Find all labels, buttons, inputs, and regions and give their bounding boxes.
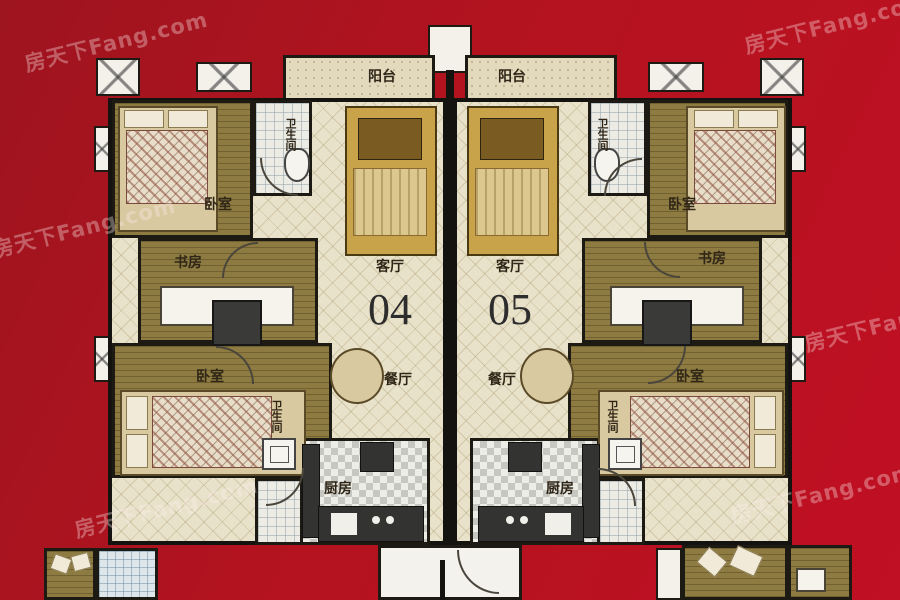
pillow — [168, 110, 208, 128]
unit05-coffee-table — [475, 168, 549, 236]
unit04-tv-cabinet — [358, 118, 422, 160]
pillow — [694, 110, 734, 128]
pillow — [738, 110, 778, 128]
unit05-bedroom-bottom-label: 卧室 — [660, 368, 720, 386]
watermark-mid-right: 房天下Fang.com — [801, 284, 900, 359]
watermark-top-right: 房天下Fang.com — [741, 0, 900, 60]
pillow — [754, 396, 776, 430]
burner — [506, 516, 514, 524]
unit04-sink — [330, 512, 358, 536]
unit04-living-label: 客厅 — [364, 258, 416, 276]
unit05-number: 05 — [476, 286, 544, 334]
unit04-number: 04 — [356, 286, 424, 334]
pillow — [124, 110, 164, 128]
bay-window-right-2 — [790, 336, 806, 382]
neighbor-table — [796, 568, 826, 592]
unit05-bathroom-top-label: 卫生间 — [594, 118, 610, 182]
unit04-dining-label: 餐厅 — [372, 371, 424, 389]
unit05-tv-cabinet — [480, 118, 544, 160]
pillow — [754, 434, 776, 468]
unit05-dining-label: 餐厅 — [476, 371, 528, 389]
unit04-study-label: 书房 — [158, 254, 218, 272]
pillow — [126, 396, 148, 430]
unit04-coffee-table — [353, 168, 427, 236]
balcony-label-unit04: 阳台 — [350, 68, 414, 86]
quilt — [694, 130, 776, 204]
quilt — [630, 396, 750, 468]
unit05-kitchen-label: 厨房 — [534, 480, 586, 498]
unit04-bathroom-bottom-label: 卫生间 — [268, 400, 284, 458]
floorplan-image: 阳台 阳台 卧室 卫生间 书房 客厅 04 餐厅 卧室 卫生间 厨房 — [0, 0, 900, 600]
burner — [520, 516, 528, 524]
stair-lobby — [378, 545, 522, 600]
unit05-bedroom-top-label: 卧室 — [652, 196, 712, 214]
unit04-desk-chair — [212, 300, 262, 346]
unit04-stove — [360, 442, 394, 472]
bay-window-top-left — [96, 58, 140, 96]
ac-ledge-top-right — [648, 62, 704, 92]
burner — [386, 516, 394, 524]
unit05-dining-table — [520, 348, 574, 404]
balcony-label-unit05: 阳台 — [480, 68, 544, 86]
unit05-living-label: 客厅 — [484, 258, 536, 276]
unit04-bathroom-top-label: 卫生间 — [282, 118, 298, 182]
unit04-kitchen-label: 厨房 — [312, 480, 364, 498]
neighbor-bottom-right-duct — [656, 548, 682, 600]
unit05-bathroom-bottom-label: 卫生间 — [604, 400, 620, 458]
unit04-bedroom-top-label: 卧室 — [188, 196, 248, 214]
burner — [372, 516, 380, 524]
quilt — [152, 396, 272, 468]
unit05-desk-chair — [642, 300, 692, 346]
bay-window-top-right — [760, 58, 804, 96]
bay-window-right-1 — [790, 126, 806, 172]
pillow — [126, 434, 148, 468]
unit05-stove — [508, 442, 542, 472]
unit05-sink — [544, 512, 572, 536]
lobby-wall — [440, 560, 445, 600]
neighbor-bottom-left-bathroom — [96, 548, 158, 600]
unit04-bedroom-bottom-label: 卧室 — [180, 368, 240, 386]
unit05-study-label: 书房 — [682, 250, 742, 268]
ac-ledge-top-left — [196, 62, 252, 92]
quilt — [126, 130, 208, 204]
